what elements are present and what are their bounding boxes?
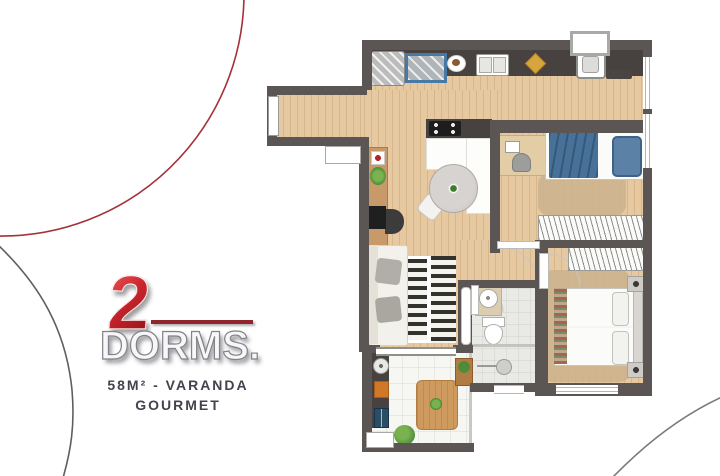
varanda-tall-plant [455,358,473,386]
bedroom2-desk-chair [512,153,531,172]
single-bed-blanket [549,131,598,178]
refrigerator [371,51,405,86]
varanda-table-plant [430,398,442,410]
gas-box [570,31,610,56]
bathroom-sink-basin [479,289,498,308]
shower-head [496,359,512,375]
bedroom2-laptop [505,141,520,153]
shower-divider [472,344,536,347]
right-wall-window-2 [643,114,652,168]
marketing-floorplan-canvas: 2 DORMS. 58M² - VARANDA GOURMET [0,0,720,476]
double-bed-pillow-2 [612,331,629,365]
master-wardrobe [568,247,646,271]
double-bed-foot-runner [554,288,567,364]
double-bed-headboard [633,290,643,364]
bedroom2-door-leaf [497,241,540,249]
bedroom2-bottom-wall [538,240,652,248]
decor-red-object [371,151,385,165]
single-bed-pillow [612,136,642,177]
service-bench [606,70,632,79]
cooktop-window [405,53,447,83]
bathroom-window [494,385,524,394]
double-bed-pillow-1 [612,292,629,326]
decor-plate-food [452,59,460,66]
bedroom2-left-wall [490,120,500,253]
corridor-bottom-wall [276,137,366,146]
bedroom2-wardrobe [538,215,646,242]
laundry-tub-basin [582,56,599,73]
master-door-leaf [539,253,549,289]
corridor-top-wall [267,86,367,95]
varanda-niche [366,432,394,448]
sofa-pillow-1 [375,258,403,286]
kitchen-left-wall [362,40,372,90]
sink-bowl-left [479,57,492,73]
sink-bowl-right [493,57,506,73]
kitchen-bedroom2-wall [490,120,652,133]
varanda-sink [373,358,389,374]
shaft-box [325,146,361,164]
slider-right-stub-wall [453,345,473,353]
tv-screen [369,206,386,229]
sofa-pillow-2 [375,296,402,323]
bathroom-glass-panel [461,287,471,345]
entry-door [268,96,279,136]
bathroom-door-leaf [471,285,479,315]
varanda-sliding-door [376,347,456,356]
barbecue-grill [374,381,389,398]
varanda-floor-plant [394,425,415,445]
right-wall-window-1 [643,57,652,109]
varanda-cooler [374,408,389,428]
sideboard-plant [370,167,386,185]
master-window [556,385,618,394]
living-left-wall [359,137,369,352]
cooktop-4-burners [429,121,461,136]
dining-table-centerpiece [448,183,459,194]
